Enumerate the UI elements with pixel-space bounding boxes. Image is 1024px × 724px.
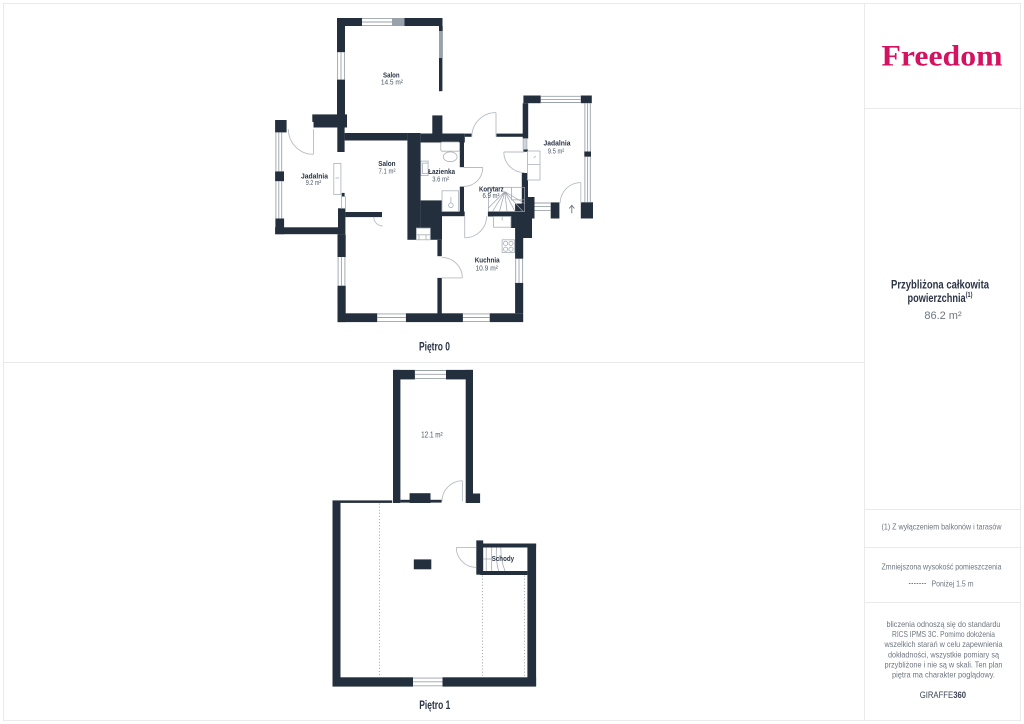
svg-text:powierzchnia(1): powierzchnia(1): [908, 292, 973, 306]
svg-text:6.9 m²: 6.9 m²: [483, 193, 501, 200]
svg-text:Jadalnia: Jadalnia: [544, 139, 572, 148]
svg-text:bliczenia odnoszą się do stand: bliczenia odnoszą się do standardu: [887, 619, 1001, 629]
svg-text:Schody: Schody: [492, 554, 514, 563]
svg-text:GIRAFFE360: GIRAFFE360: [920, 690, 966, 700]
svg-text:RICS IPMS 3C. Pomimo dołożenia: RICS IPMS 3C. Pomimo dołożenia: [892, 629, 995, 639]
svg-text:Salon: Salon: [378, 159, 395, 168]
svg-text:12.1 m²: 12.1 m²: [421, 431, 443, 440]
svg-text:przybliżone i nie są w skali.: przybliżone i nie są w skali. Ten plan: [885, 660, 1003, 670]
svg-text:9.5 m²: 9.5 m²: [548, 149, 565, 156]
svg-text:Piętro 1: Piętro 1: [419, 698, 450, 712]
svg-text:piętra ma charakter poglądowy.: piętra ma charakter poglądowy.: [892, 670, 995, 680]
svg-text:Kuchnia: Kuchnia: [475, 256, 501, 265]
svg-text:Poniżej 1.5 m: Poniżej 1.5 m: [932, 579, 974, 589]
svg-text:Salon: Salon: [383, 71, 400, 80]
svg-text:Zmniejszona wysokość pomieszcz: Zmniejszona wysokość pomieszczenia: [882, 562, 1002, 572]
svg-text:10.9 m²: 10.9 m²: [476, 265, 499, 272]
svg-text:86.2 m²: 86.2 m²: [924, 310, 962, 322]
svg-text:3.6 m²: 3.6 m²: [432, 177, 449, 184]
svg-text:14.5 m²: 14.5 m²: [381, 80, 404, 87]
svg-text:7.1 m²: 7.1 m²: [379, 168, 397, 175]
svg-text:Jadalnia: Jadalnia: [301, 171, 329, 180]
svg-text:Freedom: Freedom: [882, 40, 1003, 73]
svg-text:(1) Z wyłączeniem balkonów i t: (1) Z wyłączeniem balkonów i tarasów: [882, 522, 1003, 532]
svg-text:Przybliżona całkowita: Przybliżona całkowita: [891, 280, 989, 292]
svg-text:wszelkich starań w celu zapewn: wszelkich starań w celu zapewnienia: [884, 639, 1003, 649]
svg-text:9.2 m²: 9.2 m²: [306, 180, 322, 187]
svg-text:dokładności, wszystkie pomiary: dokładności, wszystkie pomiary są: [888, 649, 999, 659]
svg-text:Piętro 0: Piętro 0: [419, 339, 450, 353]
svg-text:Łazienka: Łazienka: [428, 167, 456, 176]
